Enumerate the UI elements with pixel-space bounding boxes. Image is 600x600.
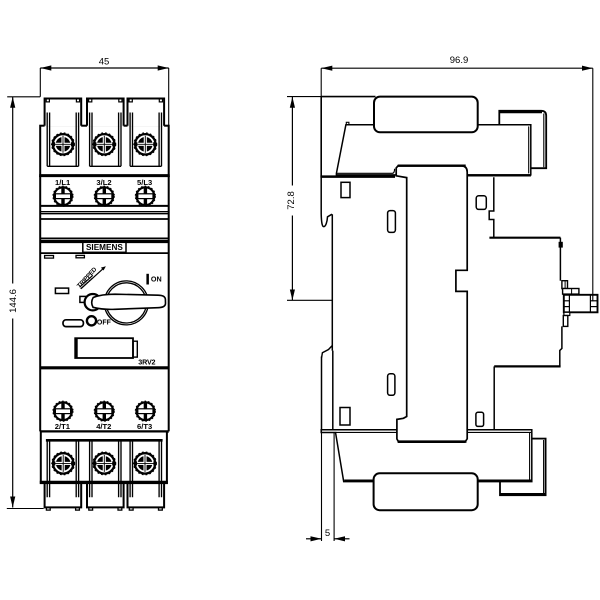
svg-text:1/L1: 1/L1	[55, 178, 71, 187]
svg-text:5/L3: 5/L3	[137, 178, 152, 187]
svg-text:4/T2: 4/T2	[96, 422, 111, 431]
svg-text:ON: ON	[151, 274, 162, 283]
svg-text:144.6: 144.6	[8, 289, 19, 313]
svg-text:96.9: 96.9	[450, 55, 469, 66]
svg-text:3/L2: 3/L2	[96, 178, 111, 187]
svg-text:6/T3: 6/T3	[137, 422, 152, 431]
svg-text:OFF: OFF	[97, 319, 112, 326]
svg-text:5: 5	[325, 528, 330, 539]
svg-text:SIEMENS: SIEMENS	[86, 243, 123, 252]
svg-text:45: 45	[99, 57, 110, 68]
svg-text:2/T1: 2/T1	[55, 422, 71, 431]
svg-text:72.8: 72.8	[286, 191, 297, 210]
svg-text:3RV2: 3RV2	[138, 357, 155, 366]
